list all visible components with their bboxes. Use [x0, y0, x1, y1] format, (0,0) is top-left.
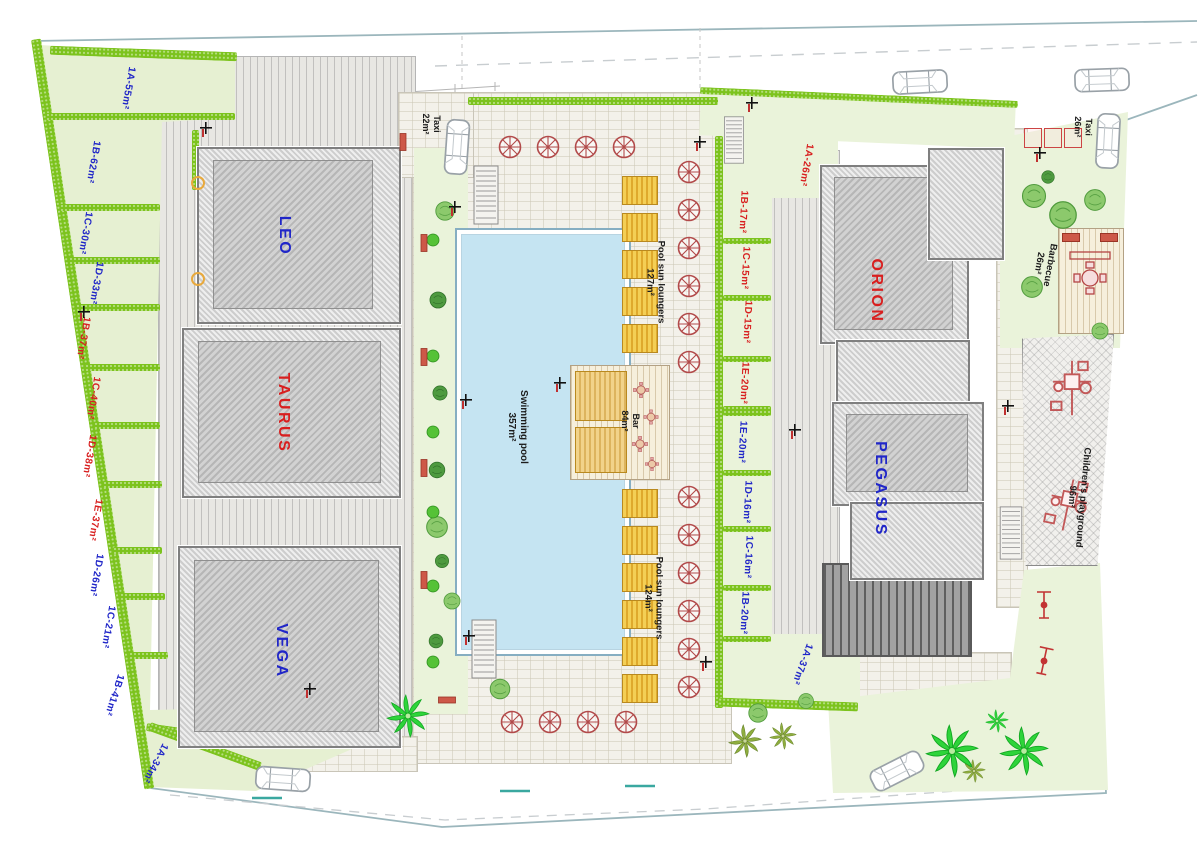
plot-label: 1D-16m²: [740, 480, 753, 523]
elevation-marker: [78, 306, 90, 318]
umbrella-icons: [500, 137, 700, 733]
label-text: Taxi: [1083, 118, 1094, 136]
site-plan: LEO TAURUS VEGA ORION PEGASUS 1A-55m² 1B…: [0, 0, 1200, 849]
plot-label: 1C-16m²: [741, 535, 754, 578]
elevation-marker: [463, 630, 475, 642]
label-text: Swimming pool: [517, 390, 529, 464]
plot-label: 1B-20m²: [737, 591, 750, 634]
building-label-orion: ORION: [867, 259, 885, 324]
taxi-left-label: Taxi 22m²: [420, 113, 442, 134]
elevation-marker: [554, 377, 566, 389]
building-label-vega: VEGA: [272, 623, 290, 678]
label-text: Pool sun loungers: [655, 241, 666, 324]
lamp-icons: [1034, 592, 1053, 675]
label-area: 22m²: [420, 113, 431, 134]
plot-label: 1B-17m²: [736, 190, 749, 233]
label-text: Pool sun loungers: [653, 557, 664, 640]
elevation-marker: [700, 656, 712, 668]
label-area: 26m²: [1072, 116, 1084, 137]
elevation-marker: [1002, 400, 1014, 412]
elevation-marker: [746, 97, 758, 109]
elevation-marker: [460, 394, 472, 406]
elevation-marker: [304, 683, 316, 695]
palm-tree-icons: [387, 695, 1048, 782]
plan-icons: [0, 0, 1200, 849]
elevation-marker: [449, 201, 461, 213]
building-label-taurus: TAURUS: [274, 373, 292, 453]
pool-loungers-bottom-label: Pool sun loungers 124m²: [642, 557, 665, 640]
elevation-marker: [1034, 147, 1046, 159]
label-area: 127m²: [644, 268, 655, 295]
building-label-leo: LEO: [275, 216, 293, 256]
label-area: 96m²: [1065, 485, 1078, 508]
barbecue-icons: [1070, 252, 1110, 294]
label-area: 357m²: [505, 413, 517, 442]
swimming-pool-label: Swimming pool 357m²: [505, 390, 529, 464]
bar-label: Bar 84m²: [619, 410, 641, 431]
label-area: 124m²: [642, 584, 653, 611]
plot-label: 1C-15m²: [738, 246, 751, 289]
label-area: 84m²: [619, 410, 630, 431]
taxi-right-label: Taxi 26m²: [1072, 116, 1094, 138]
plot-label: 1E-20m²: [735, 421, 748, 464]
label-text: Bar: [630, 413, 641, 428]
elevation-marker: [200, 122, 212, 134]
elevation-marker: [789, 424, 801, 436]
plot-label: 1E-20m²: [737, 362, 750, 405]
plot-label: 1D-15m²: [740, 300, 753, 343]
elevation-marker: [694, 136, 706, 148]
label-text: Taxi: [431, 115, 442, 132]
pool-loungers-top-label: Pool sun loungers 127m²: [644, 241, 667, 324]
building-label-pegasus: PEGASUS: [871, 441, 889, 537]
